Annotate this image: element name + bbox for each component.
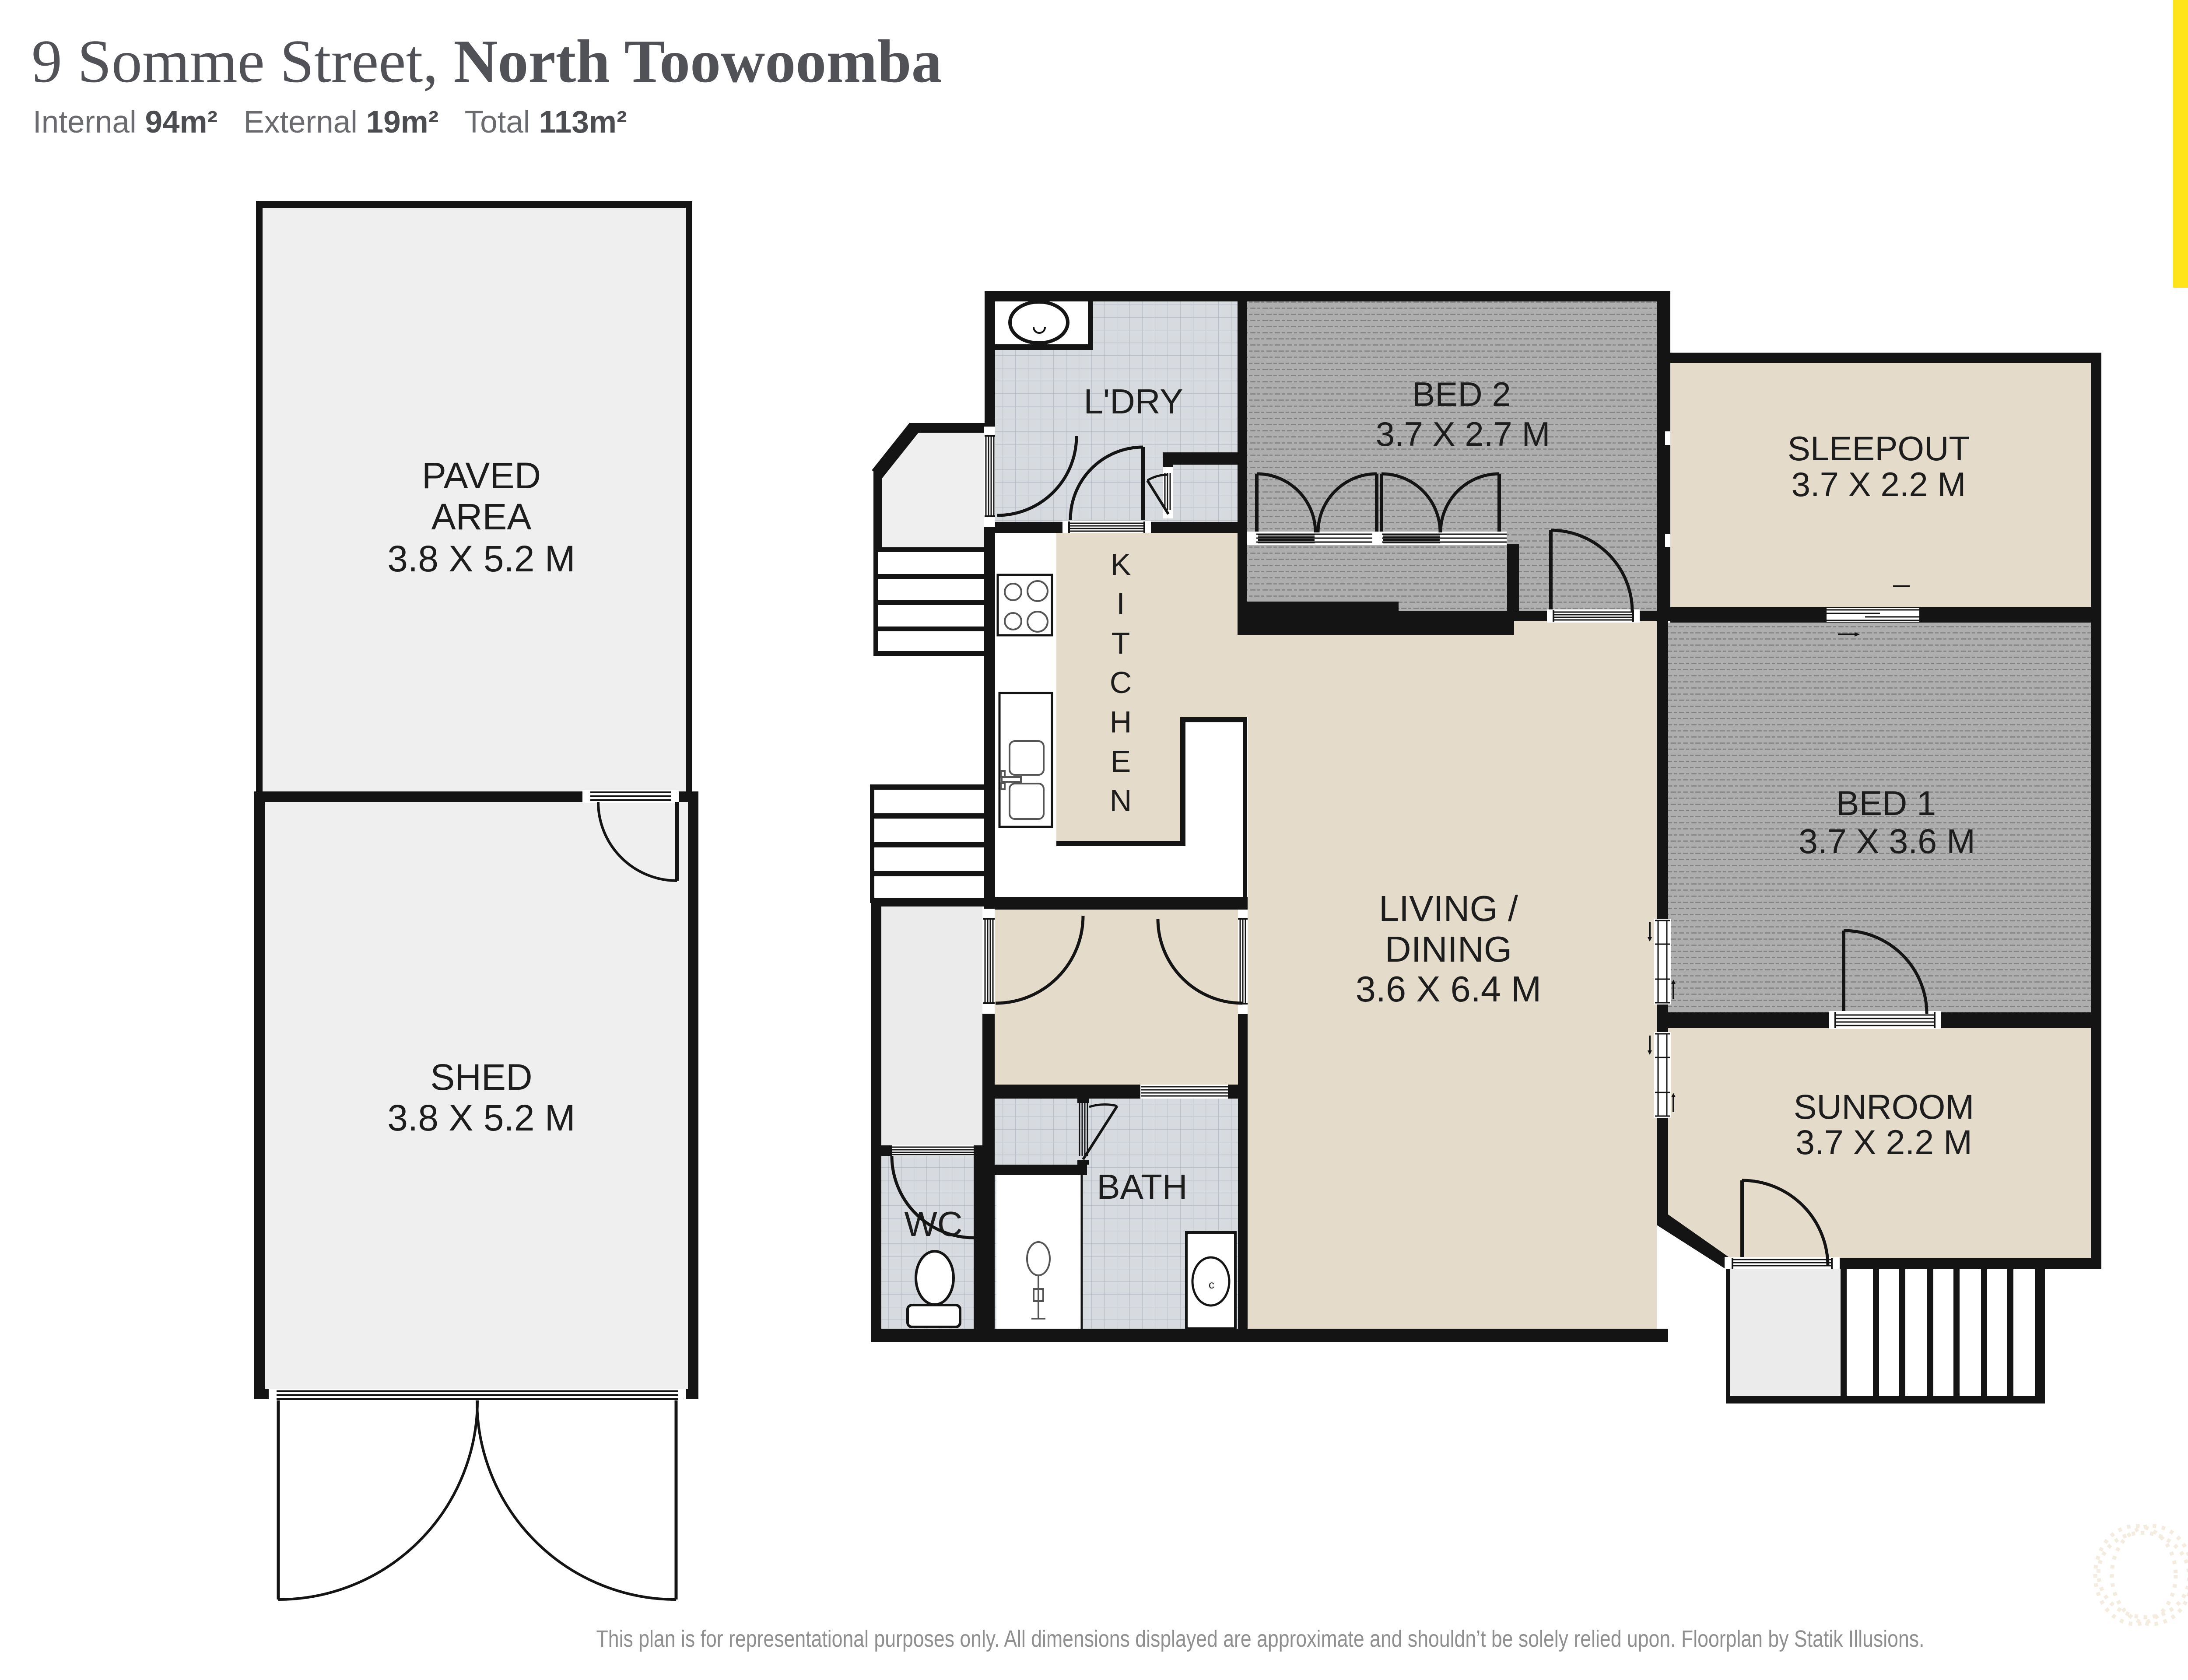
svg-text:PAVED: PAVED bbox=[422, 455, 541, 496]
svg-text:3.7 X 2.2 M: 3.7 X 2.2 M bbox=[1792, 465, 1966, 504]
svg-text:LIVING /: LIVING / bbox=[1379, 888, 1518, 929]
svg-text:3.7 X 3.6 M: 3.7 X 3.6 M bbox=[1799, 822, 1975, 861]
svg-text:E: E bbox=[1111, 744, 1131, 778]
svg-text:SUNROOM: SUNROOM bbox=[1794, 1087, 1974, 1126]
svg-text:N: N bbox=[1110, 784, 1132, 818]
svg-text:AREA: AREA bbox=[431, 496, 532, 537]
svg-text:9 Somme Street, North Toowoomb: 9 Somme Street, North Toowoomba bbox=[32, 28, 942, 95]
svg-text:I: I bbox=[1116, 587, 1125, 621]
svg-text:This plan is for representatio: This plan is for representational purpos… bbox=[596, 1626, 1925, 1652]
svg-text:Internal 94m² External 19m²: Internal 94m² External 19m² Total 113m² bbox=[33, 105, 627, 140]
svg-text:H: H bbox=[1110, 705, 1132, 739]
svg-text:BED 2: BED 2 bbox=[1412, 375, 1511, 413]
svg-text:L'DRY: L'DRY bbox=[1083, 382, 1183, 421]
svg-text:SLEEPOUT: SLEEPOUT bbox=[1788, 429, 1970, 468]
svg-text:3.7 X 2.7 M: 3.7 X 2.7 M bbox=[1376, 415, 1550, 453]
svg-text:3.8 X 5.2 M: 3.8 X 5.2 M bbox=[387, 1097, 575, 1138]
svg-text:3.7 X 2.2 M: 3.7 X 2.2 M bbox=[1795, 1123, 1972, 1162]
svg-text:c: c bbox=[1209, 1278, 1214, 1291]
svg-text:DINING: DINING bbox=[1385, 929, 1512, 969]
svg-text:T: T bbox=[1112, 626, 1130, 660]
svg-text:C: C bbox=[1110, 665, 1132, 700]
svg-text:BATH: BATH bbox=[1097, 1167, 1187, 1206]
svg-text:BED 1: BED 1 bbox=[1836, 784, 1936, 822]
svg-text:K: K bbox=[1111, 547, 1131, 581]
svg-text:3.6 X 6.4 M: 3.6 X 6.4 M bbox=[1356, 969, 1541, 1009]
svg-text:SHED: SHED bbox=[430, 1057, 532, 1098]
svg-text:3.8 X 5.2 M: 3.8 X 5.2 M bbox=[387, 538, 575, 579]
